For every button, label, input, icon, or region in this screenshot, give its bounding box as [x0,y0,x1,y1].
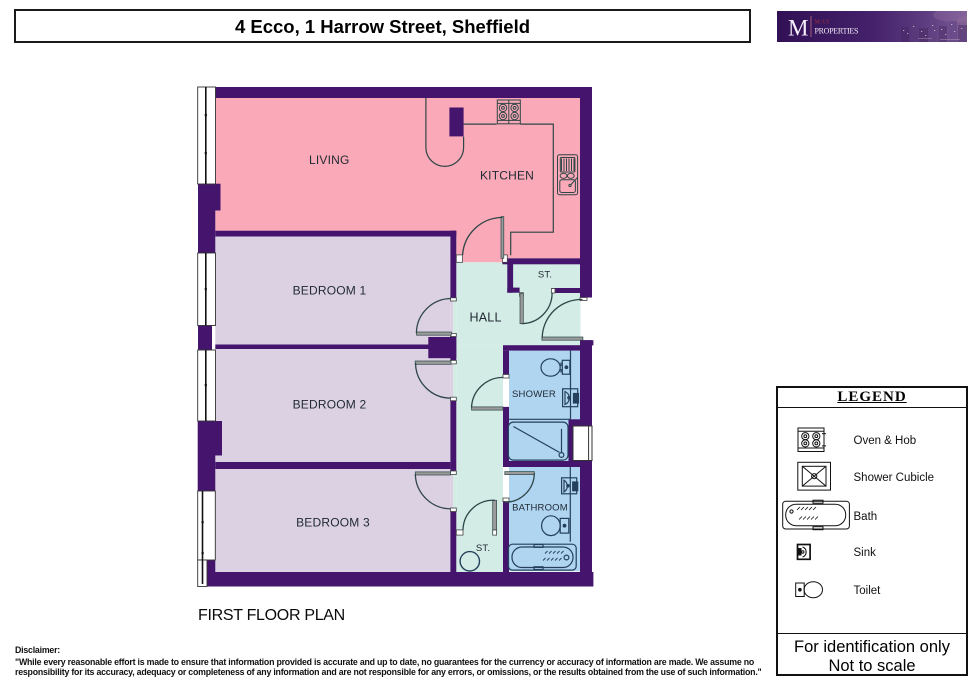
svg-text:BEDROOM 1: BEDROOM 1 [293,283,367,297]
svg-text:ST.: ST. [476,543,490,554]
svg-text:Oven & Hob: Oven & Hob [854,435,917,447]
svg-text:BEDROOM 3: BEDROOM 3 [296,515,370,529]
svg-text:BATHROOM: BATHROOM [512,502,568,513]
svg-text:Shower Cubicle: Shower Cubicle [854,472,935,484]
svg-text:Bath: Bath [854,511,878,523]
svg-text:SHOWER: SHOWER [512,389,556,400]
svg-text:Sink: Sink [854,547,877,559]
svg-text:BEDROOM 2: BEDROOM 2 [293,397,367,411]
svg-text:KITCHEN: KITCHEN [480,168,534,182]
svg-text:Toilet: Toilet [854,585,882,597]
svg-text:HALL: HALL [470,311,502,325]
svg-text:ST.: ST. [538,269,552,280]
svg-text:LIVING: LIVING [309,153,350,167]
